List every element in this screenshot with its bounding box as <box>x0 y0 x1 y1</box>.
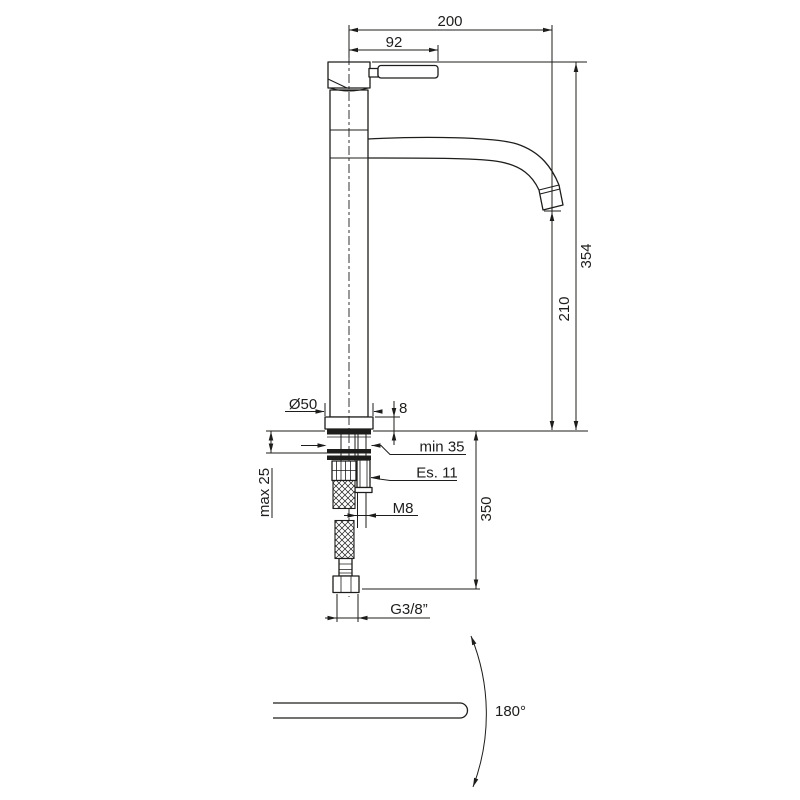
gasket-bottom-2 <box>327 456 371 461</box>
dim-deck-thickness-label: max 25 <box>256 468 273 517</box>
threaded-stud-hex <box>357 460 370 488</box>
supply-hose-lower <box>335 521 354 559</box>
dim-supply-thread-label: G3/8” <box>390 601 428 618</box>
dim-overall-reach-label: 200 <box>437 13 462 30</box>
handle-stub <box>369 69 378 78</box>
drawing-canvas: 200 92 Ø50 8 min 35 Es. 11 M8 G3/8” max … <box>0 0 800 800</box>
dim-hose-drop-label: 350 <box>478 496 495 521</box>
gasket-bottom-1 <box>327 449 371 454</box>
stud-washer <box>355 488 372 493</box>
hose-hex-nut <box>333 576 359 593</box>
gasket-top <box>327 429 371 435</box>
dim-mounting-hole-label: min 35 <box>419 439 464 456</box>
dim-spout-height-label: 210 <box>556 296 573 321</box>
lever-handle <box>378 66 438 79</box>
dim-base-plate-height-label: 8 <box>399 400 407 417</box>
supply-hose-upper <box>333 481 355 509</box>
dim-handle-reach-label: 92 <box>386 34 403 51</box>
dim-overall-height-label: 354 <box>578 243 595 268</box>
dim-stud-thread-label: M8 <box>393 500 414 517</box>
dim-base-diameter-label: Ø50 <box>289 396 317 413</box>
dim-hex-wrench-label: Es. 11 <box>416 465 457 482</box>
faucet-technical-drawing: 200 92 Ø50 8 min 35 Es. 11 M8 G3/8” max … <box>0 0 800 800</box>
swivel-angle-label: 180° <box>495 703 526 720</box>
